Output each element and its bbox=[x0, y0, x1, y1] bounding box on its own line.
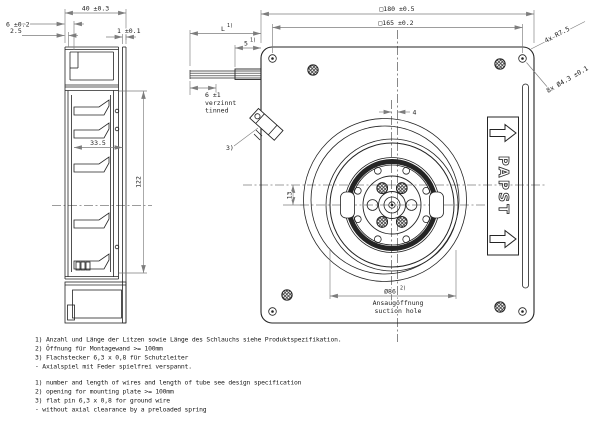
dim-center-offset-x: 4 bbox=[413, 109, 417, 117]
rivet-holes bbox=[282, 59, 505, 312]
papst-arrow-icon bbox=[490, 125, 516, 142]
shaft-center bbox=[391, 204, 393, 206]
dim-suction: Ø86 bbox=[384, 288, 396, 296]
note-en-1: 1) number and length of wires and length… bbox=[35, 379, 302, 387]
side-inner-walls bbox=[68, 91, 114, 278]
dim-mounting-square: □165 ±0.2 bbox=[378, 19, 413, 27]
housing-fold-strip bbox=[523, 84, 529, 288]
ref-suction: 2) bbox=[400, 286, 406, 292]
dim-lip: 2.5 bbox=[10, 27, 22, 35]
side-terminal-box bbox=[65, 282, 126, 323]
ref-tube-length: 1) bbox=[250, 38, 256, 44]
note-de-3: 3) Flachstecker 6,3 x 0,8 für Schutzleit… bbox=[35, 354, 189, 362]
note-en-3: 3) flat pin 6,3 x 0,8 for ground wire bbox=[35, 397, 170, 405]
dim-tube-length: 5 bbox=[244, 40, 248, 48]
ref-wire-length: 1) bbox=[227, 23, 233, 29]
note-de-1: 1) Anzahl und Länge der Litzen sowie Län… bbox=[35, 336, 341, 344]
dim-plate-thickness: 1 ±0.1 bbox=[117, 27, 141, 35]
label-suction-en: suction hole bbox=[375, 307, 422, 315]
dim-wire-length: L bbox=[221, 25, 225, 33]
ground-pin-connector bbox=[250, 108, 283, 140]
dim-corner-radius: 4x R7.5 bbox=[543, 25, 571, 45]
fan-technical-drawing: PAPST bbox=[0, 0, 600, 426]
papst-label: PAPST bbox=[488, 117, 519, 255]
label-tinned-en: tinned bbox=[205, 107, 229, 115]
wire-bundle bbox=[190, 69, 261, 80]
dim-center-offset-y: 13 bbox=[286, 192, 294, 200]
dim-outer-square: □180 ±0.5 bbox=[379, 5, 414, 13]
note-en-2: 2) opening for mounting plate >= 100mm bbox=[35, 388, 174, 396]
label-suction-de: Ansaugöffnung bbox=[373, 299, 424, 307]
note-de-4: - Axialspiel mit Feder spielfrei verspan… bbox=[35, 363, 192, 371]
note-en-4: - without axial clearance by a preloaded… bbox=[35, 406, 207, 414]
notes-german: 1) Anzahl und Länge der Litzen sowie Län… bbox=[35, 336, 341, 371]
dim-depth: 40 ±0.3 bbox=[82, 5, 109, 13]
dim-inner-depth: 33.5 bbox=[90, 139, 106, 147]
brand-text: PAPST bbox=[495, 156, 511, 216]
ring-cutout-left bbox=[341, 192, 355, 218]
dim-tinned: 6 ±1 bbox=[205, 91, 221, 99]
dim-mounting-holes: 8x Ø4.3 ±0.1 bbox=[545, 64, 590, 94]
impeller-blades bbox=[74, 100, 109, 270]
papst-arrow-icon bbox=[490, 231, 516, 248]
ring-cutout-right bbox=[430, 192, 444, 218]
drawing-canvas: PAPST bbox=[0, 0, 600, 426]
side-volute-top bbox=[70, 52, 114, 80]
ref-ground-pin: 3) bbox=[226, 144, 234, 152]
side-view-section bbox=[65, 47, 126, 323]
dim-height: 122 bbox=[135, 176, 143, 188]
note-de-2: 2) Öffnung für Montagewand >= 100mm bbox=[35, 344, 163, 353]
notes-english: 1) number and length of wires and length… bbox=[35, 379, 302, 414]
